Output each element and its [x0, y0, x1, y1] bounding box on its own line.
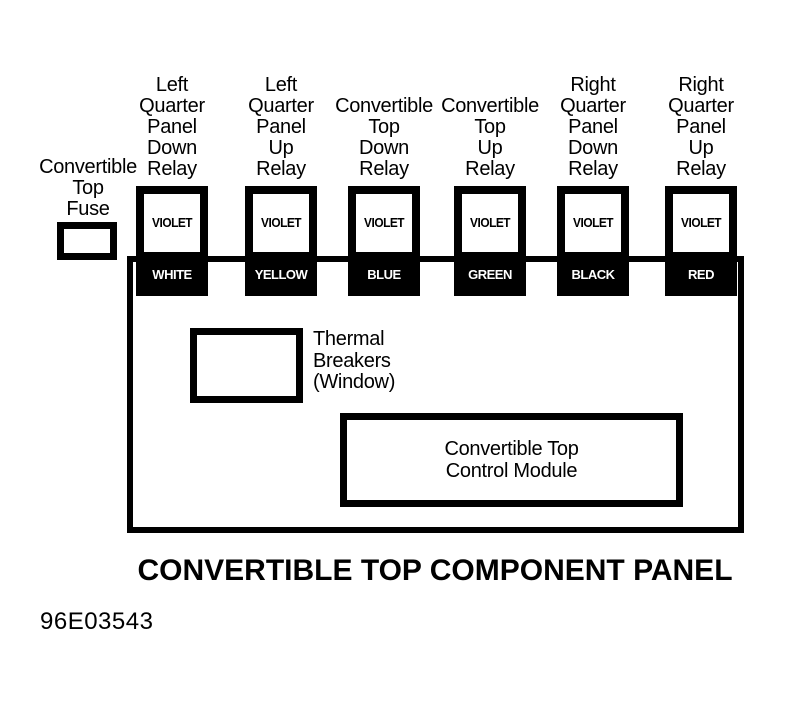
relay-band-red: RED — [665, 252, 737, 296]
relay-band-yellow: YELLOW — [245, 252, 317, 296]
relay-band-white: WHITE — [136, 252, 208, 296]
relay-convertible-top-up-box: VIOLET GREEN — [454, 186, 526, 296]
relay-wire-color-text: VIOLET — [364, 216, 404, 230]
relay-right-quarter-panel-down-box: VIOLET BLACK — [557, 186, 629, 296]
relay-window: VIOLET — [356, 194, 412, 252]
relay-wire-color-text: VIOLET — [261, 216, 301, 230]
relay-window: VIOLET — [253, 194, 309, 252]
relay-left-quarter-panel-down-box: VIOLET WHITE — [136, 186, 208, 296]
relay-convertible-top-down-box: VIOLET BLUE — [348, 186, 420, 296]
control-module-label: Convertible Top Control Module — [444, 438, 578, 482]
diagram-canvas: Convertible Top Fuse Left Quarter Panel … — [0, 0, 808, 708]
relay-band-black: BLACK — [557, 252, 629, 296]
relay-band-blue: BLUE — [348, 252, 420, 296]
relay-wire-color-text: VIOLET — [152, 216, 192, 230]
convertible-top-fuse-box — [57, 222, 117, 260]
relay-right-quarter-panel-up-box: VIOLET RED — [665, 186, 737, 296]
figure-number: 96E03543 — [40, 608, 153, 636]
relay-wire-color-text: VIOLET — [573, 216, 613, 230]
diagram-title: CONVERTIBLE TOP COMPONENT PANEL — [137, 554, 732, 588]
thermal-breakers-box — [190, 328, 303, 403]
relay-window: VIOLET — [673, 194, 729, 252]
thermal-breakers-label: Thermal Breakers (Window) — [313, 329, 395, 394]
relay-band-green: GREEN — [454, 252, 526, 296]
relay-wire-color-text: VIOLET — [470, 216, 510, 230]
control-module-box: Convertible Top Control Module — [340, 413, 683, 507]
relay-right-quarter-panel-up-label: Right Quarter Panel Up Relay — [636, 75, 766, 180]
relay-window: VIOLET — [565, 194, 621, 252]
relay-window: VIOLET — [462, 194, 518, 252]
relay-wire-color-text: VIOLET — [681, 216, 721, 230]
relay-left-quarter-panel-up-box: VIOLET YELLOW — [245, 186, 317, 296]
relay-window: VIOLET — [144, 194, 200, 252]
